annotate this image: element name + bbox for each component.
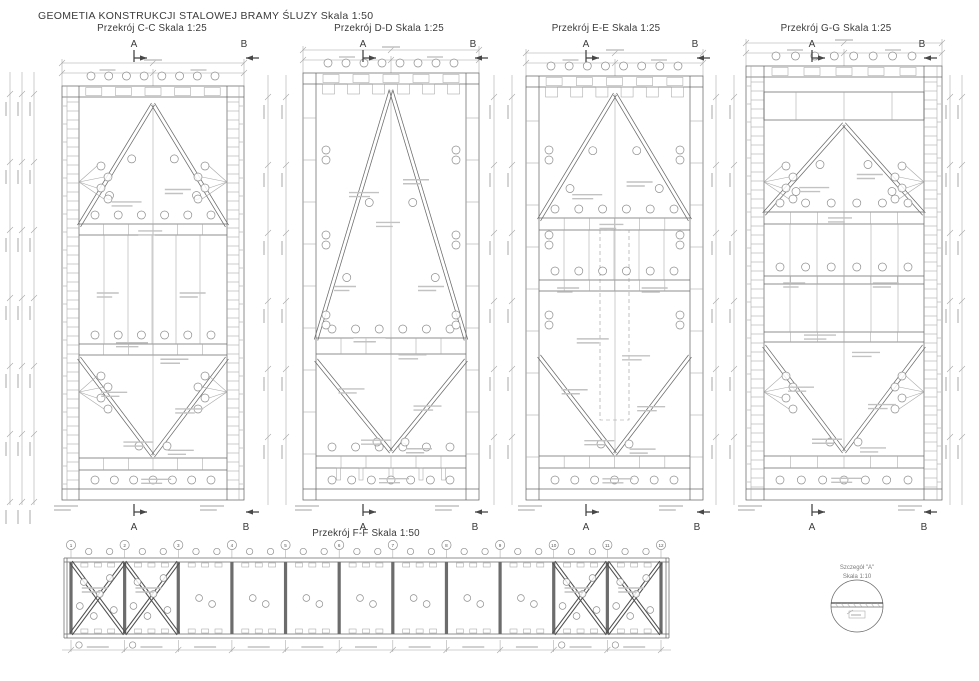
section-gg-title: Przekrój G-G Skala 1:25: [781, 23, 892, 34]
ff-grid-label: 3: [177, 543, 180, 548]
ff-grid-label: 11: [605, 543, 610, 548]
drawing-linework: ABABABABABABABAB123456789101112: [6, 39, 965, 653]
section-dd-title: Przekrój D-D Skala 1:25: [334, 23, 444, 34]
section-ff-drawing: 123456789101112: [62, 540, 671, 653]
drawing-title: GEOMETIA KONSTRUKCJI STALOWEJ BRAMY ŚLUZ…: [38, 9, 373, 22]
drawing-canvas: ABABABABABABABAB123456789101112 GEOMETIA…: [0, 0, 979, 681]
cut-marker-label: B: [692, 39, 699, 50]
ff-grid-label: 8: [445, 543, 448, 548]
ff-grid-label: 4: [231, 543, 234, 548]
cut-marker-label: B: [921, 522, 928, 533]
dimension-chain: [264, 75, 271, 505]
dimension-chain: [946, 75, 953, 505]
dimension-chain: [508, 75, 515, 505]
cut-marker-label: A: [131, 39, 138, 50]
dimension-chain: [490, 75, 497, 505]
detail-a-drawing: [831, 580, 883, 632]
detail-scale: Skala 1:10: [843, 574, 872, 580]
ff-grid-label: 6: [338, 543, 341, 548]
ff-grid-label: 2: [123, 543, 126, 548]
section-gg-drawing: ABAB: [738, 39, 945, 533]
dimension-chain: [18, 72, 25, 524]
cut-marker-label: B: [241, 39, 248, 50]
ff-grid-label: 12: [658, 543, 664, 548]
cut-marker-label: B: [243, 522, 250, 533]
cut-marker-label: A: [360, 39, 367, 50]
dimension-chain: [282, 75, 289, 505]
cut-marker-label: A: [809, 39, 816, 50]
detail-title: Szczegół "A": [840, 565, 874, 571]
cut-marker-label: B: [472, 522, 479, 533]
section-cc-title: Przekrój C-C Skala 1:25: [97, 23, 207, 34]
section-ff-title: Przekrój F-F Skala 1:50: [312, 528, 420, 539]
dimension-chain: [30, 72, 37, 524]
ff-grid-label: 1: [70, 543, 73, 548]
dimension-chain: [958, 75, 965, 505]
cut-marker-label: A: [131, 522, 138, 533]
cut-marker-label: B: [919, 39, 926, 50]
section-dd-drawing: ABAB: [295, 39, 488, 533]
ff-grid-label: 10: [551, 543, 557, 548]
cut-marker-label: B: [694, 522, 701, 533]
cut-marker-label: A: [809, 522, 816, 533]
ff-grid-label: 5: [284, 543, 287, 548]
section-ee-title: Przekrój E-E Skala 1:25: [552, 23, 661, 34]
dimension-chain: [712, 75, 719, 505]
dimension-chain: [730, 75, 737, 505]
ff-grid-label: 7: [392, 543, 395, 548]
section-ee-drawing: ABAB: [518, 39, 710, 533]
engineering-drawing: ABABABABABABABAB123456789101112 GEOMETIA…: [0, 0, 979, 681]
section-cc-drawing: ABAB: [54, 39, 259, 533]
cut-marker-label: A: [583, 522, 590, 533]
cut-marker-label: A: [583, 39, 590, 50]
cut-marker-label: B: [470, 39, 477, 50]
dimension-chain: [6, 72, 13, 524]
ff-grid-label: 9: [499, 543, 502, 548]
